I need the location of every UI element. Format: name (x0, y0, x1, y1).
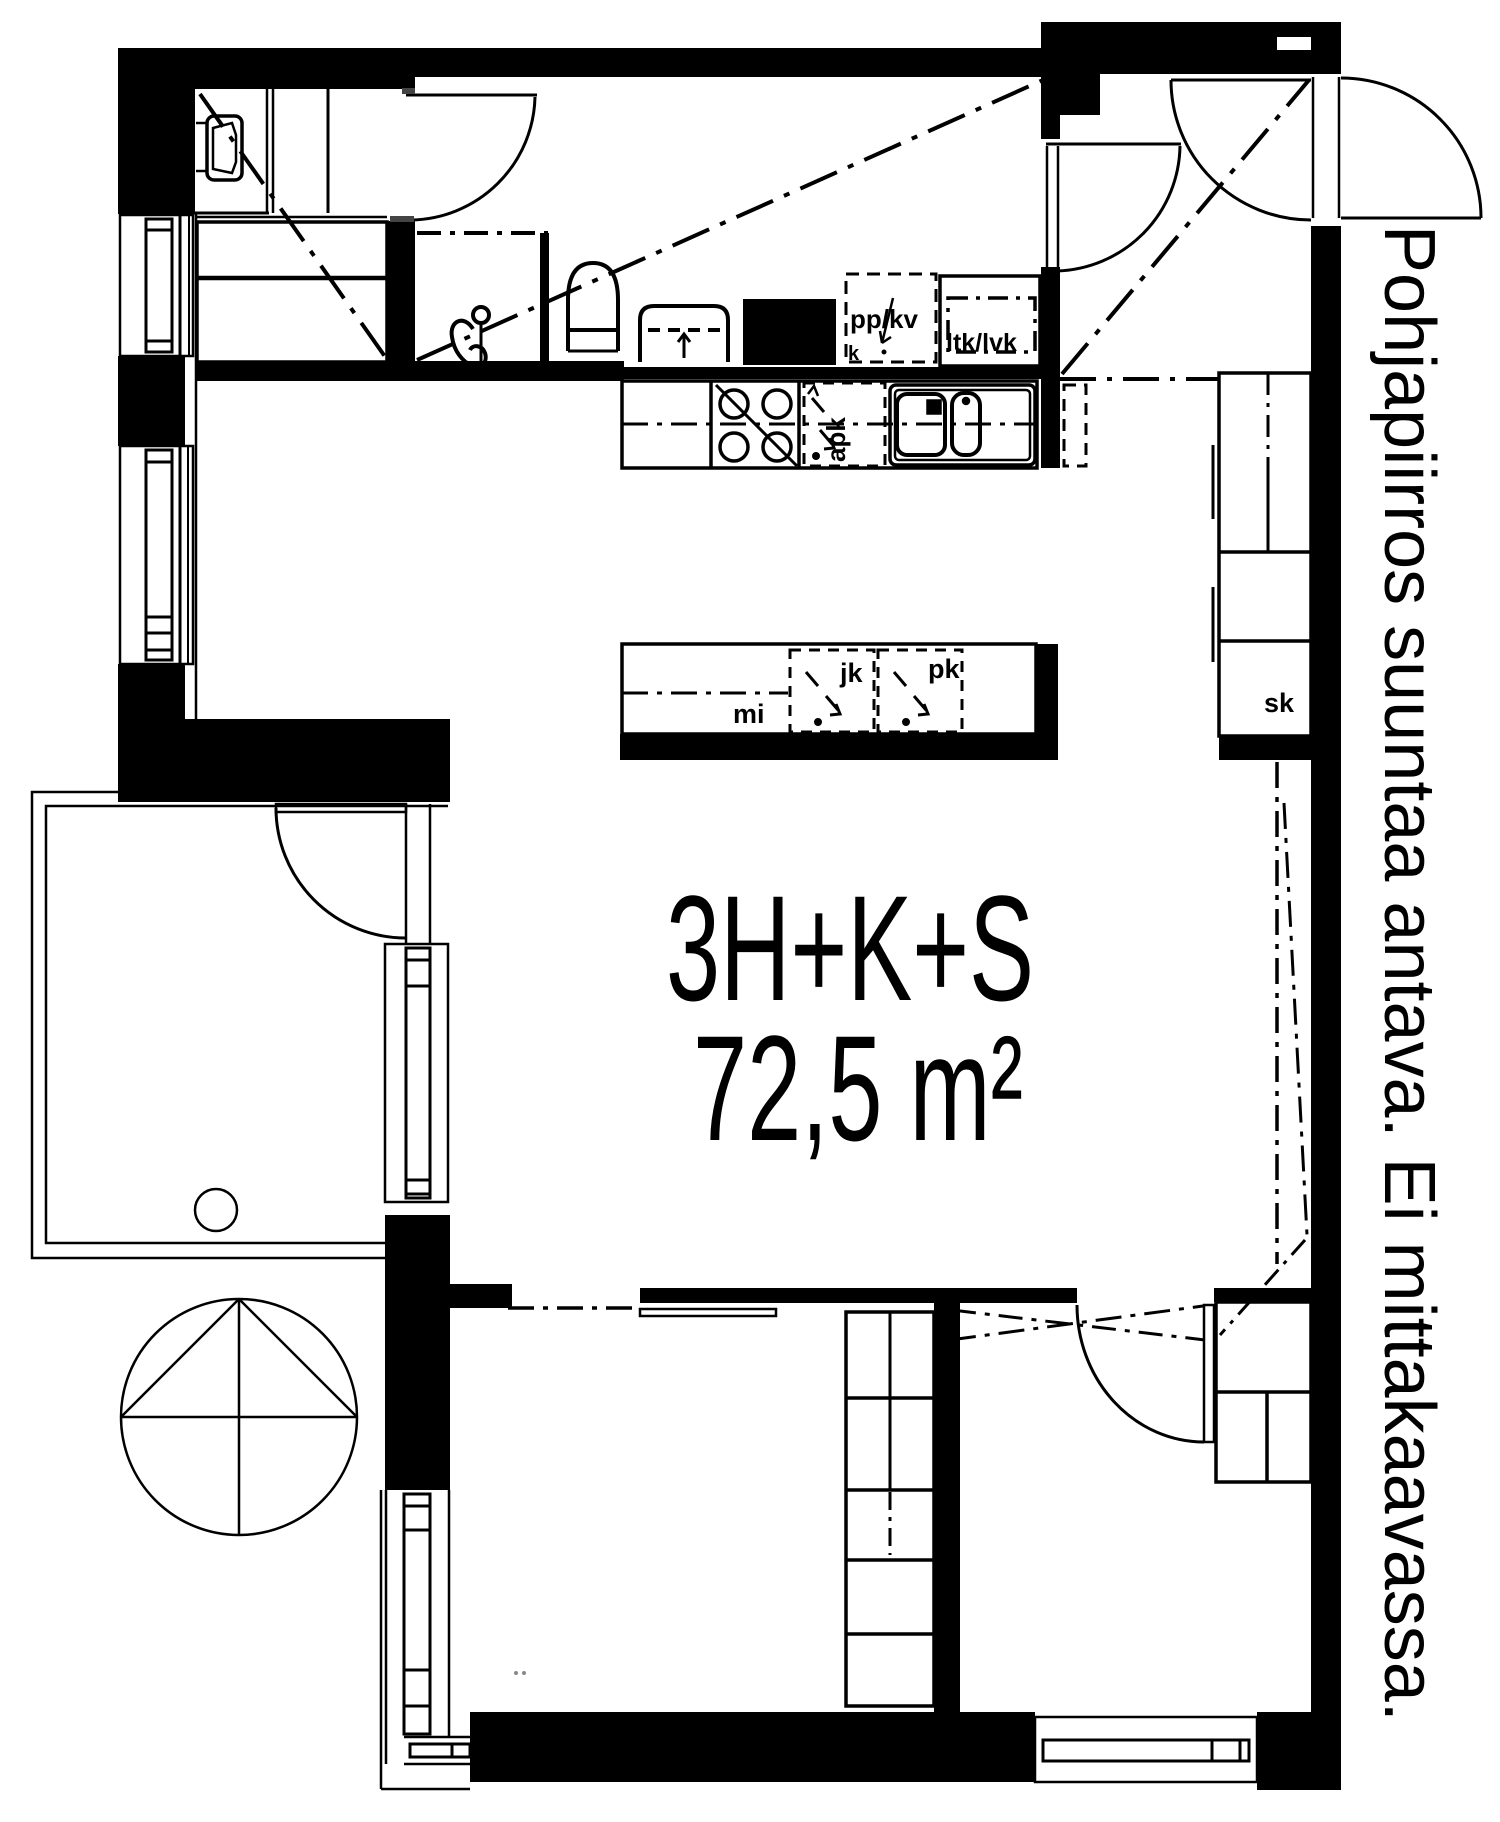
svg-text:k: k (848, 343, 860, 365)
svg-text:jk: jk (839, 658, 864, 688)
svg-text:ltk/lvk: ltk/lvk (946, 329, 1017, 357)
svg-text:sk: sk (1264, 688, 1295, 718)
svg-text:mi: mi (733, 699, 765, 729)
svg-text:Pohjapiirros suuntaa antava. E: Pohjapiirros suuntaa antava. Ei mittakaa… (1369, 225, 1449, 1722)
svg-text:apk: apk (821, 417, 851, 462)
svg-text:pk: pk (928, 654, 960, 684)
svg-text:72,5 m²: 72,5 m² (693, 1004, 1023, 1172)
